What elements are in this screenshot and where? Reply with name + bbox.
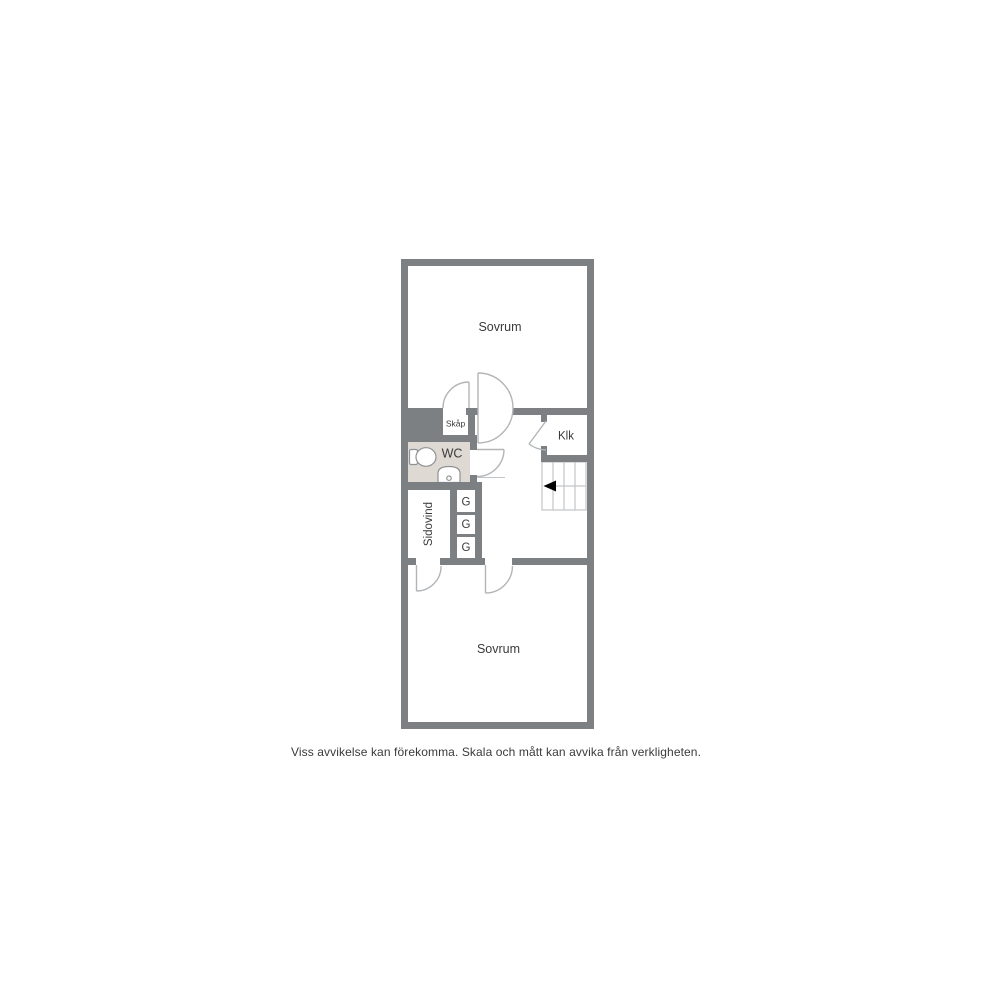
klk-door-leaf (529, 421, 546, 444)
wc-door-arc (477, 450, 504, 477)
bottom-sovrum-left-door (417, 565, 442, 591)
wc-top-wall (408, 435, 477, 442)
room-label-sidovind: Sidovind (423, 502, 435, 546)
bottom-sovrum-center-door-arc (486, 566, 513, 593)
top-sovrum-door-arc (478, 373, 513, 443)
staircase (542, 462, 586, 510)
room-label-klk: Klk (558, 431, 574, 443)
room-label-skap: Skåp (446, 419, 466, 429)
klk-bottom-wall (541, 455, 587, 462)
closet-divider-2 (457, 534, 475, 537)
room-label-sovrum-bottom: Sovrum (477, 642, 520, 656)
wall-top-of-hall (513, 408, 587, 415)
wall-stub-between-doors (466, 408, 478, 415)
wc-right-wall-bottom-stub (470, 475, 477, 482)
klk-left-wall-top-stub (541, 415, 547, 422)
skap-door-arc (443, 382, 469, 408)
room-label-closet-2: G (462, 519, 471, 531)
sink-drain-icon (447, 476, 451, 480)
closet-divider-1 (457, 512, 475, 515)
room-label-wc: WC (442, 447, 463, 461)
bottom-sovrum-wall-left (408, 558, 416, 565)
wc-door (477, 450, 505, 478)
sidovind-closet-divider-wall (450, 490, 457, 558)
disclaimer-caption: Viss avvikelse kan förekomma. Skala och … (0, 745, 992, 759)
bottom-sovrum-wall-right (512, 558, 587, 565)
skap-door (443, 382, 469, 408)
bottom-sovrum-left-door-arc (417, 566, 442, 591)
floor-plan-page: Sovrum Skåp WC Klk G G G Sidovind Sovrum… (0, 0, 992, 992)
closet-right-wall (475, 490, 482, 558)
toilet-bowl-icon (416, 448, 436, 467)
room-label-closet-1: G (462, 497, 471, 509)
floor-plan-svg: Sovrum Skåp WC Klk G G G Sidovind Sovrum (0, 0, 992, 992)
top-sovrum-door (478, 373, 513, 443)
klk-door (529, 421, 546, 450)
room-label-sovrum-top: Sovrum (478, 320, 521, 334)
wc-bottom-wall (408, 482, 482, 490)
room-label-closet-3: G (462, 542, 471, 554)
wc-right-wall-top-stub (470, 442, 477, 450)
bottom-sovrum-center-door (486, 565, 513, 593)
bottom-sovrum-wall-middle (440, 558, 485, 565)
